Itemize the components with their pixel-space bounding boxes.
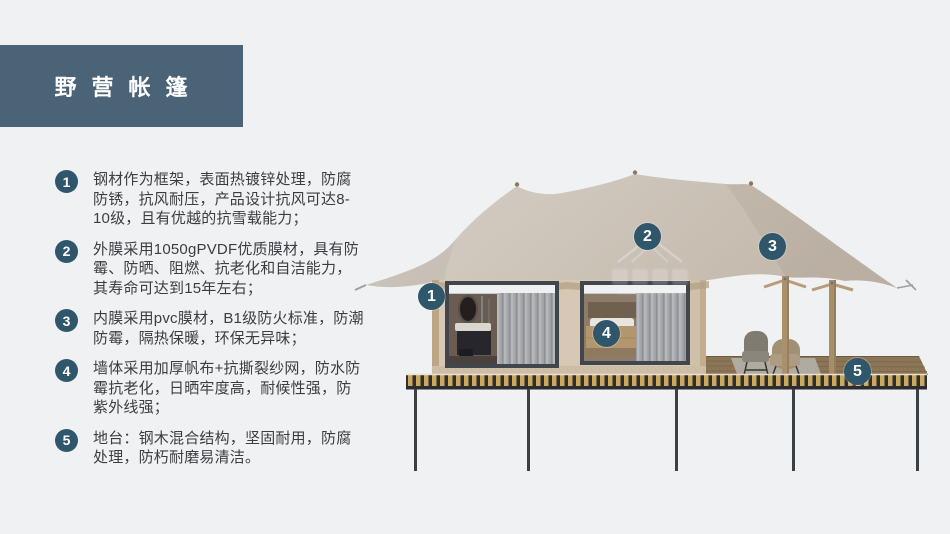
sink [455,323,491,331]
curtain [497,293,555,364]
deck-legs [414,389,919,471]
tent-marker-3: 3 [759,233,786,260]
tent-marker-4: 4 [593,320,620,347]
tent-marker-1: 1 [418,283,445,310]
mirror [459,296,477,322]
porch [706,276,928,377]
curtain [636,293,686,361]
peak-pole-tip [633,170,637,174]
roller-blind [449,285,555,293]
tent-marker-2: 2 [634,223,661,250]
tent-illustration [0,0,950,534]
tent-marker-5: 5 [844,358,871,385]
window-bathroom [445,281,559,368]
guy-rope [355,285,366,290]
peak-pole-tip [749,181,753,185]
deck [406,374,927,471]
peak-pole-tip [515,182,519,186]
slide: 野营帐篷 1 钢材作为框架，表面热镀锌处理，防腐防锈，抗风耐压，产品设计抗风可达… [0,0,950,534]
headboard [588,302,642,318]
guy-rope [897,280,916,290]
